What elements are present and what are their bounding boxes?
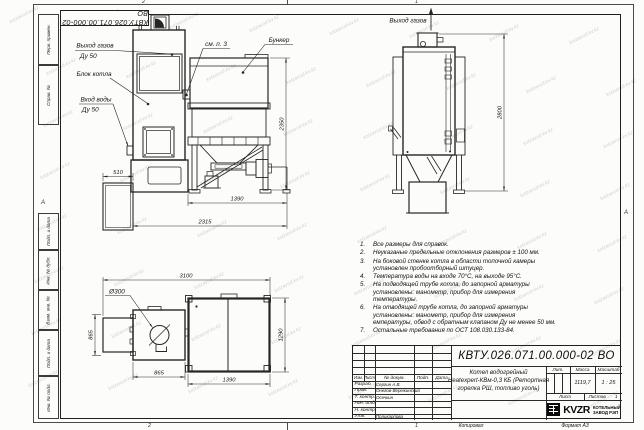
title-block: Изм. Лист № докум. Подп. Дата Разраб. Се… (352, 345, 621, 419)
sig-role-utv: Утв. (353, 414, 375, 421)
flue-fan-icon (151, 15, 169, 30)
dimension-1390-front: 1390 (231, 197, 245, 203)
copied-label: Копировал (448, 423, 494, 429)
rev-col-izm: Изм. (353, 374, 364, 381)
note-item: На боковой стенке котла в области топочн… (358, 258, 556, 273)
note-item: Неуказаные предельные отклонения размеро… (358, 249, 556, 256)
front-view (103, 15, 290, 230)
note-item: Температура воды на входе 70°С, на выход… (358, 273, 556, 280)
technical-notes: Все размеры для справок. Неуказаные пред… (358, 241, 556, 336)
dimension-2800: 2800 (498, 105, 504, 120)
doc-number: КВТУ.026.071.00.000-02 ВО (451, 346, 622, 366)
product-name: Котел водогрейный Heatexpert-КВм-0,3 КБ … (451, 366, 546, 399)
dimension-1390-plan: 1390 (223, 378, 237, 384)
note-item: Остальные требования по ОСТ 108.030.133-… (358, 327, 556, 334)
drawing-sheet: kotzavod-kv.kzkotzavod-kv.kzkotzavod-kv.… (0, 0, 644, 430)
dimension-1290: 1290 (279, 328, 285, 342)
note-item: На отводящей трубе котла, до запорной ар… (358, 304, 556, 326)
scale-label: Масштаб (595, 366, 622, 373)
lit-label: Лит. (546, 366, 570, 373)
label-boiler-block: Блок котла (76, 71, 111, 78)
company-abbr: KVZR (563, 404, 590, 416)
mass-value: 1119,7 (570, 373, 595, 393)
scale-value: 1 : 25 (595, 373, 622, 393)
format-label: Формат А3 (552, 423, 598, 429)
label-gas-out: Выход газов (76, 42, 114, 50)
side-view (389, 8, 466, 214)
label-bunker: Бункер (269, 37, 290, 44)
company-name: КОТЕЛЬНЫЙ ЗАВОД РЭП (593, 405, 621, 415)
label-gas-out-dn: Ду 50 (79, 53, 97, 60)
mass-label: Масса (570, 366, 595, 373)
rev-col-podp: Подп. (414, 374, 432, 381)
dimension-865-bottom: 865 (154, 371, 164, 377)
company-cell: KVZR КОТЕЛЬНЫЙ ЗАВОД РЭП (546, 400, 622, 421)
label-diameter-300: Ø300 (108, 289, 125, 296)
plan-view (103, 294, 271, 372)
plan-view-leaders (105, 296, 153, 328)
label-water-in: Вход воды (80, 96, 111, 104)
label-see-note-3: см. п. 3 (205, 41, 227, 48)
rev-col-docnum: № докум. (375, 374, 414, 381)
company-logo-icon (547, 403, 560, 416)
front-view-dimensions (103, 58, 290, 229)
note-item: Все размеры для справок. (358, 241, 556, 248)
front-view-leaders (75, 45, 293, 147)
dimension-2350: 2350 (280, 117, 286, 132)
sheets-label: Листов (589, 394, 606, 399)
dimension-2315: 2315 (198, 220, 213, 226)
dimension-510: 510 (113, 170, 123, 176)
label-water-in-dn: Ду 50 (81, 107, 99, 114)
sheets-value: 1 (615, 394, 618, 399)
note-item: На подводящей трубе котла, до запорной а… (358, 281, 556, 303)
label-gas-out-side: Выход газов (389, 17, 427, 25)
rev-col-list: Лист (364, 374, 375, 381)
dimension-865-left: 865 (89, 329, 95, 339)
dimension-3100: 3100 (180, 274, 194, 280)
sig-name-utv: Поликарпова (375, 414, 414, 421)
